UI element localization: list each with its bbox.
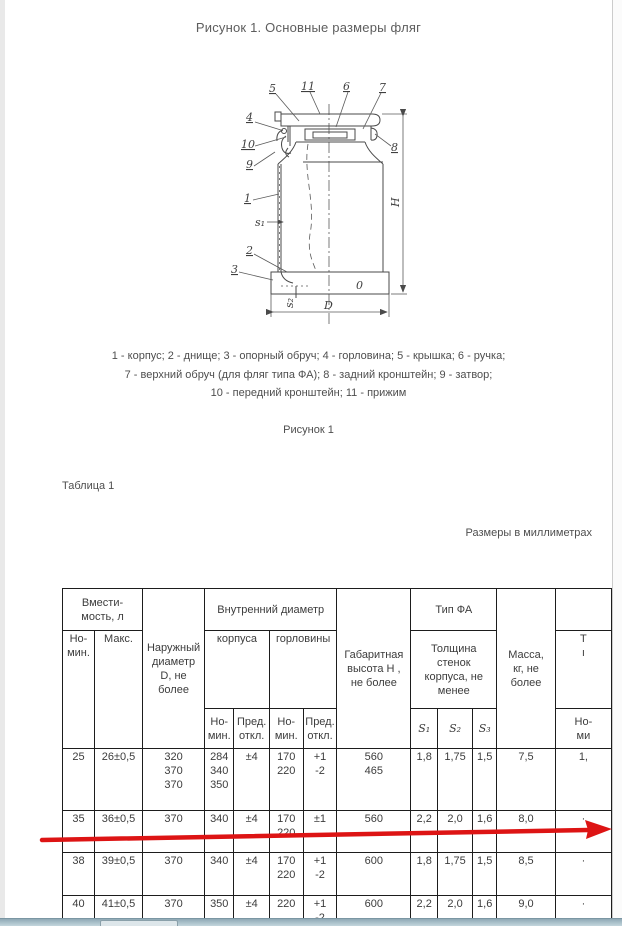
cell: 1,8 (411, 749, 438, 811)
header-capacity-max: Макс. (94, 631, 142, 749)
dimensions-table: Вмести- мость, л Наружный диаметр D, не … (62, 588, 612, 918)
cell: 2,2 (411, 811, 438, 853)
cell: 220 (269, 896, 303, 919)
cell: 9,0 (497, 896, 556, 919)
header-mass: Масса, кг, не более (497, 589, 556, 749)
cell: 2,2 (411, 896, 438, 919)
cell: · (555, 853, 611, 896)
units-note: Размеры в миллиметрах (466, 527, 592, 539)
page-left-gutter (0, 0, 5, 918)
cell: +1 -2 (303, 853, 337, 896)
callout-3: 3 (231, 263, 238, 276)
header-capacity-group: Вмести- мость, л (63, 589, 143, 631)
table-row-25: 25 26±0,5 320 370 370 284 340 350 ±4 170… (63, 749, 612, 811)
cell: ±4 (234, 853, 269, 896)
cell: ±4 (234, 811, 269, 853)
diameter-d-label: D (323, 299, 333, 312)
header-type-fa: Тип ФА (411, 589, 497, 631)
header-overall-height: Габаритная высота H , не более (337, 589, 411, 749)
cell: 170 220 (269, 811, 303, 853)
cell: 370 (143, 896, 205, 919)
callout-8: 8 (391, 141, 398, 154)
caption-line-1: 1 - корпус; 2 - днище; 3 - опорный обруч… (5, 347, 612, 366)
cell: 560 465 (337, 749, 411, 811)
caption-line-3: 10 - передний кронштейн; 11 - прижим (5, 384, 612, 403)
cell: 170 220 (269, 853, 303, 896)
cell: +1 -2 (303, 896, 337, 919)
figure-caption: 1 - корпус; 2 - днище; 3 - опорный обруч… (5, 347, 612, 403)
page-content: Рисунок 1. Основные размеры фляг (5, 0, 612, 918)
taskbar-button[interactable] (100, 920, 178, 926)
header-neck-diameter: горловины (269, 631, 336, 709)
header-body-deviation: Пред. откл. (234, 709, 269, 749)
cell: 25 (63, 749, 95, 811)
header-wall-thickness: Толщина стенок корпуса, не менее (411, 631, 497, 709)
flask-drawing-svg: 5 11 6 7 4 10 9 8 1 2 3 s₁ s₂ D H 0 (193, 74, 447, 338)
cell: · (555, 896, 611, 919)
flask-technical-drawing: 5 11 6 7 4 10 9 8 1 2 3 s₁ s₂ D H 0 (193, 74, 447, 338)
cell: 340 (205, 853, 234, 896)
cell: 8,5 (497, 853, 556, 896)
cell: 1,6 (473, 811, 497, 853)
cell: 39±0,5 (94, 853, 142, 896)
cell: 170 220 (269, 749, 303, 811)
document-page: Рисунок 1. Основные размеры фляг (0, 0, 622, 926)
cell: 370 (143, 853, 205, 896)
bottom-thickness-s2-label: s₂ (283, 298, 296, 308)
cell: 2,0 (437, 896, 472, 919)
header-body-diameter: корпуса (205, 631, 270, 709)
taskbar-strip (0, 918, 622, 926)
table-label: Таблица 1 (62, 480, 114, 492)
cell: 1,75 (437, 853, 472, 896)
cell: 600 (337, 853, 411, 896)
cell: 1,8 (411, 853, 438, 896)
page-right-margin (612, 0, 622, 918)
cell: 284 340 350 (205, 749, 234, 811)
cell: 8,0 (497, 811, 556, 853)
header-capacity-nominal: Но- мин. (63, 631, 95, 749)
cell: 1,5 (473, 749, 497, 811)
callout-1: 1 (244, 192, 251, 205)
caption-line-2: 7 - верхний обруч (для фляг типа ФА); 8 … (5, 366, 612, 385)
height-h-label: H (389, 197, 402, 208)
callout-4: 4 (245, 111, 253, 124)
callout-2: 2 (245, 244, 253, 257)
callout-10: 10 (241, 138, 255, 151)
cell: ±4 (234, 896, 269, 919)
table-row-35: 35 36±0,5 370 340 ±4 170 220 ±1 560 2,2 … (63, 811, 612, 853)
wall-thickness-s1-label: s₁ (255, 216, 265, 229)
header-outer-diameter: Наружный диаметр D, не более (143, 589, 205, 749)
cell: ±1 (303, 811, 337, 853)
callout-5: 5 (269, 82, 276, 95)
header-s2: S₂ (437, 709, 472, 749)
header-neck-nominal: Но- мин. (269, 709, 303, 749)
header-s1: S₁ (411, 709, 438, 749)
cell: 40 (63, 896, 95, 919)
cell: 1,5 (473, 853, 497, 896)
cell: +1 -2 (303, 749, 337, 811)
cell: 26±0,5 (94, 749, 142, 811)
cell: 35 (63, 811, 95, 853)
cell: 350 (205, 896, 234, 919)
callout-11: 11 (301, 80, 315, 93)
page-title: Рисунок 1. Основные размеры фляг (5, 20, 612, 35)
cell: 36±0,5 (94, 811, 142, 853)
header-inner-diameter-group: Внутренний диаметр (205, 589, 337, 631)
cell: 7,5 (497, 749, 556, 811)
cell: 41±0,5 (94, 896, 142, 919)
cell: 1,75 (437, 749, 472, 811)
cell: 340 (205, 811, 234, 853)
header-body-nominal: Но- мин. (205, 709, 234, 749)
figure-label: Рисунок 1 (5, 424, 612, 436)
table-row-40: 40 41±0,5 370 350 ±4 220 +1 -2 600 2,2 2… (63, 896, 612, 919)
callout-9: 9 (246, 158, 253, 171)
cell: ±4 (234, 749, 269, 811)
header-neck-deviation: Пред. откл. (303, 709, 337, 749)
cell: 1,6 (473, 896, 497, 919)
callout-7: 7 (379, 81, 386, 94)
base-zero-label: 0 (356, 279, 363, 292)
cell: 560 (337, 811, 411, 853)
cell: 38 (63, 853, 95, 896)
callout-6: 6 (343, 80, 350, 93)
cell: · (555, 811, 611, 853)
cell: 600 (337, 896, 411, 919)
cell: 370 (143, 811, 205, 853)
header-clipped-sub: Но- ми (555, 709, 611, 749)
cell: 320 370 370 (143, 749, 205, 811)
table-row-38: 38 39±0,5 370 340 ±4 170 220 +1 -2 600 1… (63, 853, 612, 896)
cell: 2,0 (437, 811, 472, 853)
cell: 1, (555, 749, 611, 811)
header-clipped-top (555, 589, 611, 631)
header-s3: S₃ (473, 709, 497, 749)
header-clipped-mid: Т ı (555, 631, 611, 709)
